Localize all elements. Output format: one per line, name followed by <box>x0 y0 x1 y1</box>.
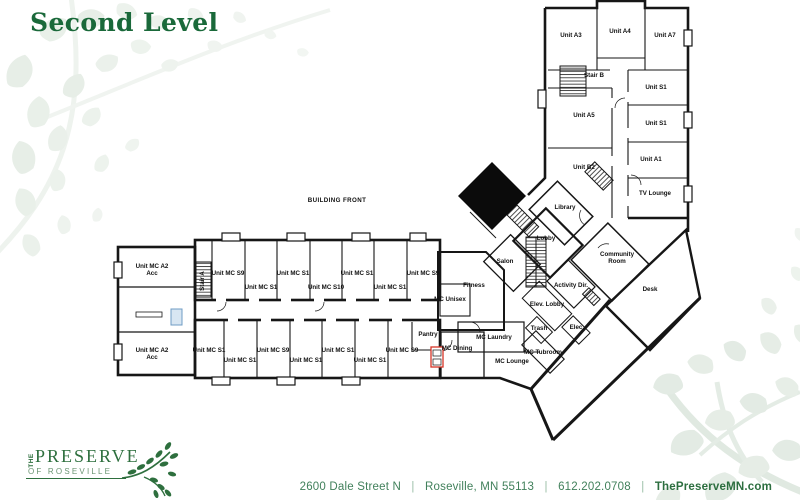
room-label-salon: Salon <box>497 258 514 265</box>
room-label-library: Library <box>555 204 577 211</box>
footer-separator: | <box>544 481 547 493</box>
room-label-unit-mc-s1: Unit MC S1 <box>193 347 226 354</box>
reception-desk-hatch <box>583 288 601 306</box>
footer-website: ThePreserveMN.com <box>655 481 772 493</box>
room-label-mc-lounge: MC Lounge <box>495 358 529 365</box>
room-label-unit-mc-a2-acc: Unit MC A2Acc <box>136 347 169 361</box>
room-label-stair-b: Stair B <box>584 72 604 79</box>
room-label-unit-a1: Unit A1 <box>640 156 662 163</box>
room-label-trash: Trash <box>531 325 548 332</box>
highlighted-door <box>171 309 182 325</box>
room-label-unit-mc-s1: Unit MC S1 <box>341 270 374 277</box>
room-label-mc-dining: MC Dining <box>442 345 473 352</box>
room-label-unit-b2: Unit B2 <box>573 164 595 171</box>
room-label-unit-mc-s1: Unit MC S1 <box>322 347 355 354</box>
room-label-unit-a5: Unit A5 <box>573 112 595 119</box>
bay-windows <box>114 30 692 385</box>
room-label-unit-mc-s1: Unit MC S1 <box>374 284 407 291</box>
room-label-unit-mc-s10: Unit MC S10 <box>308 284 345 291</box>
room-label-unit-mc-s9: Unit MC S9 <box>257 347 290 354</box>
room-label-stair-a: Stair A <box>199 271 206 291</box>
footer-separator: | <box>411 481 414 493</box>
footer-city: Roseville, MN 55113 <box>425 481 534 493</box>
footer-phone: 612.202.0708 <box>558 481 631 493</box>
room-label-desk: Desk <box>643 286 658 293</box>
branch-leaves-icon <box>116 438 194 498</box>
footer-address: 2600 Dale Street N <box>300 481 401 493</box>
room-label-unit-a7: Unit A7 <box>654 32 676 39</box>
room-label-unit-mc-a2-acc: Unit MC A2Acc <box>136 263 169 277</box>
room-label-community-room: CommunityRoom <box>600 251 635 265</box>
room-label-unit-mc-s1: Unit MC S1 <box>224 357 257 364</box>
room-label-unit-a3: Unit A3 <box>560 32 582 39</box>
stair-b-hatch <box>560 66 586 96</box>
walls-group <box>118 1 700 440</box>
room-label-elec: Elec <box>570 324 583 331</box>
logo-the: THE <box>28 453 35 468</box>
logo-of: OF ROSEVILLE <box>28 467 112 476</box>
room-label-mc-tubroom: MC Tubroom <box>524 349 562 356</box>
room-label-mc-unisex: MC Unisex <box>434 296 466 303</box>
footer-contact: 2600 Dale Street N | Roseville, MN 55113… <box>300 481 772 493</box>
door-arcs <box>217 98 641 351</box>
room-label-pantry: Pantry <box>418 331 438 338</box>
room-label-activity-dir-: Activity Dir. <box>554 282 588 289</box>
page-title: Second Level <box>30 8 218 37</box>
room-label-unit-s1: Unit S1 <box>645 120 667 127</box>
footer-separator: | <box>641 481 644 493</box>
room-label-unit-s1: Unit S1 <box>645 84 667 91</box>
room-label-unit-mc-s1: Unit MC S1 <box>354 357 387 364</box>
room-label-unit-mc-s1: Unit MC S1 <box>277 270 310 277</box>
room-label-fitness: Fitness <box>463 282 485 289</box>
room-labels: Unit A3Unit A4Unit A7Stair BUnit S1Unit … <box>136 28 677 365</box>
room-label-unit-mc-s9: Unit MC S9 <box>407 270 440 277</box>
stairs-group <box>196 66 613 305</box>
room-label-unit-mc-s1: Unit MC S1 <box>245 284 278 291</box>
table-symbol <box>136 312 162 317</box>
flyer-page: Second Level <box>0 0 800 500</box>
room-label-unit-mc-s9: Unit MC S9 <box>386 347 419 354</box>
room-label-mc-laundry: MC Laundry <box>476 334 512 341</box>
lobby-stair-hatch <box>526 237 546 287</box>
preserve-logo: THE PRESERVE OF ROSEVILLE <box>24 444 214 494</box>
room-label-tv-lounge: TV Lounge <box>639 190 672 197</box>
logo-underline <box>26 478 126 479</box>
room-label-unit-mc-s9: Unit MC S9 <box>212 270 245 277</box>
room-label-unit-a4: Unit A4 <box>609 28 631 35</box>
room-label-unit-mc-s1: Unit MC S1 <box>290 357 323 364</box>
room-label-elev-lobby: Elev. Lobby <box>530 301 565 308</box>
room-label-lobby: Lobby <box>537 235 556 242</box>
room-label-building-front: BUILDING FRONT <box>308 197 367 204</box>
floor-plan: Unit A3Unit A4Unit A7Stair BUnit S1Unit … <box>0 0 800 500</box>
